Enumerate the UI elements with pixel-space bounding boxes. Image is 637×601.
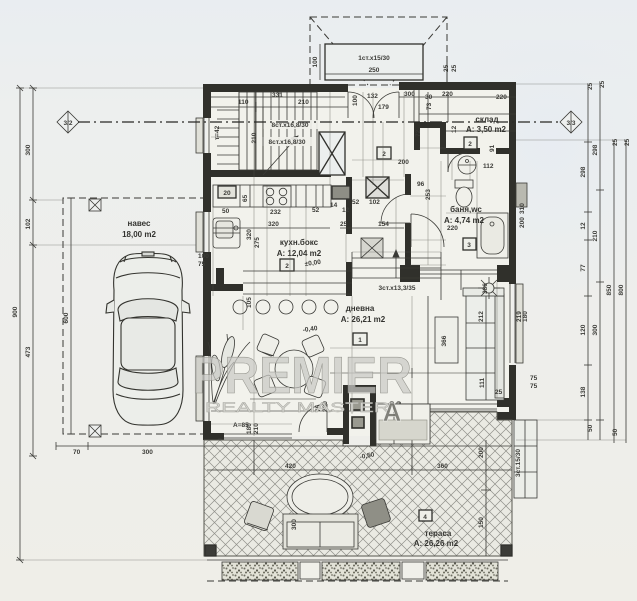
svg-text:4: 4 <box>423 514 427 521</box>
svg-text:12: 12 <box>580 222 587 230</box>
svg-text:110: 110 <box>238 99 249 106</box>
svg-text:75: 75 <box>530 375 538 382</box>
svg-text:386: 386 <box>482 283 489 294</box>
svg-text:253: 253 <box>425 189 432 200</box>
svg-text:154: 154 <box>378 221 389 228</box>
svg-text:112: 112 <box>483 163 494 170</box>
svg-text:18,00 m2: 18,00 m2 <box>122 230 156 239</box>
svg-text:25: 25 <box>587 82 594 90</box>
svg-text:PREMIER: PREMIER <box>192 347 412 405</box>
svg-text:300: 300 <box>291 519 298 530</box>
svg-text:3ст.15/30: 3ст.15/30 <box>515 449 522 477</box>
svg-text:50: 50 <box>587 424 594 432</box>
svg-text:232: 232 <box>270 209 281 216</box>
svg-text:200: 200 <box>519 217 526 228</box>
svg-text:150: 150 <box>478 517 485 528</box>
svg-text:25: 25 <box>451 64 458 72</box>
svg-text:220: 220 <box>496 94 507 101</box>
svg-text:кухн.бокс: кухн.бокс <box>280 238 319 247</box>
svg-text:100: 100 <box>352 95 359 106</box>
svg-text:320: 320 <box>246 229 253 240</box>
svg-text:т=42: т=42 <box>214 125 221 140</box>
svg-text:70: 70 <box>73 449 81 456</box>
svg-text:52: 52 <box>312 207 320 214</box>
svg-text:A: 4,74 m2: A: 4,74 m2 <box>444 216 485 225</box>
svg-text:111: 111 <box>479 377 486 388</box>
svg-text:25: 25 <box>599 80 606 88</box>
svg-text:12: 12 <box>451 125 458 133</box>
svg-text:20: 20 <box>223 190 231 197</box>
svg-text:473: 473 <box>25 346 32 357</box>
svg-text:850: 850 <box>606 284 613 295</box>
svg-text:25: 25 <box>495 389 503 396</box>
svg-text:3/2: 3/2 <box>63 120 72 127</box>
svg-text:360: 360 <box>437 463 448 470</box>
svg-text:180: 180 <box>246 423 253 434</box>
svg-text:210: 210 <box>251 132 258 143</box>
svg-text:212: 212 <box>478 311 485 322</box>
svg-text:навес: навес <box>128 219 151 228</box>
svg-text:8ст.х16,8/30: 8ст.х16,8/30 <box>272 122 309 129</box>
svg-text:366: 366 <box>441 335 448 346</box>
svg-text:30: 30 <box>425 94 433 101</box>
svg-text:210: 210 <box>298 99 309 106</box>
svg-text:900: 900 <box>12 306 19 317</box>
svg-text:52: 52 <box>352 199 360 206</box>
svg-text:1: 1 <box>358 337 362 344</box>
svg-text:73: 73 <box>426 102 433 110</box>
svg-text:72: 72 <box>415 129 422 137</box>
svg-text:75: 75 <box>530 383 538 390</box>
svg-text:25: 25 <box>624 138 631 146</box>
svg-text:96: 96 <box>417 181 425 188</box>
svg-text:50: 50 <box>612 428 619 436</box>
svg-text:100: 100 <box>198 253 209 260</box>
svg-text:50: 50 <box>222 208 230 215</box>
svg-text:REALTY MASTER: REALTY MASTER <box>205 400 390 415</box>
svg-text:A: 12,04 m2: A: 12,04 m2 <box>277 249 322 258</box>
svg-text:100: 100 <box>312 56 319 67</box>
svg-text:310: 310 <box>519 203 526 214</box>
svg-text:14: 14 <box>330 202 338 209</box>
svg-text:132: 132 <box>367 93 378 100</box>
svg-text:300: 300 <box>404 91 415 98</box>
svg-text:25: 25 <box>612 138 619 146</box>
svg-text:3: 3 <box>467 242 471 249</box>
svg-text:180: 180 <box>522 311 529 322</box>
svg-text:A: 26,26 m2: A: 26,26 m2 <box>414 539 459 548</box>
svg-text:220: 220 <box>442 91 453 98</box>
svg-text:120: 120 <box>580 324 587 335</box>
svg-text:77: 77 <box>580 264 587 272</box>
svg-text:102: 102 <box>369 199 380 206</box>
svg-text:298: 298 <box>592 144 599 155</box>
svg-text:1ст.х15/30: 1ст.х15/30 <box>358 55 390 62</box>
svg-text:A: 26,21 m2: A: 26,21 m2 <box>341 315 386 324</box>
svg-text:250: 250 <box>369 67 380 74</box>
svg-text:298: 298 <box>580 166 587 177</box>
svg-text:3/3: 3/3 <box>566 120 575 127</box>
svg-text:102: 102 <box>25 218 32 229</box>
svg-text:2: 2 <box>468 141 472 148</box>
svg-text:275: 275 <box>254 237 261 248</box>
svg-text:склад: склад <box>475 115 498 124</box>
svg-text:800: 800 <box>618 284 625 295</box>
svg-text:300: 300 <box>142 449 153 456</box>
svg-text:3ст.х13,3/35: 3ст.х13,3/35 <box>379 285 416 292</box>
svg-text:дневна: дневна <box>346 304 375 313</box>
svg-text:331: 331 <box>272 92 283 99</box>
svg-text:тераса: тераса <box>425 529 452 538</box>
svg-text:75: 75 <box>198 261 206 268</box>
svg-text:138: 138 <box>580 386 587 397</box>
svg-text:91: 91 <box>489 144 496 152</box>
svg-text:25: 25 <box>340 221 348 228</box>
svg-text:300: 300 <box>25 144 32 155</box>
svg-text:A: 3,50 m2: A: 3,50 m2 <box>466 125 507 134</box>
svg-text:200: 200 <box>478 447 485 458</box>
svg-text:2: 2 <box>285 263 289 270</box>
svg-text:12: 12 <box>342 207 350 214</box>
svg-text:420: 420 <box>285 463 296 470</box>
svg-text:210: 210 <box>592 230 599 241</box>
svg-text:600: 600 <box>63 312 70 323</box>
svg-text:8ст.х16,8/30: 8ст.х16,8/30 <box>269 139 306 146</box>
svg-text:баня,wc: баня,wc <box>450 205 482 214</box>
svg-text:25: 25 <box>443 64 450 72</box>
svg-text:320: 320 <box>268 221 279 228</box>
svg-text:300: 300 <box>592 324 599 335</box>
svg-text:179: 179 <box>378 104 389 111</box>
svg-text:65: 65 <box>242 194 249 202</box>
svg-text:А: А <box>383 397 402 427</box>
svg-text:220: 220 <box>447 225 458 232</box>
